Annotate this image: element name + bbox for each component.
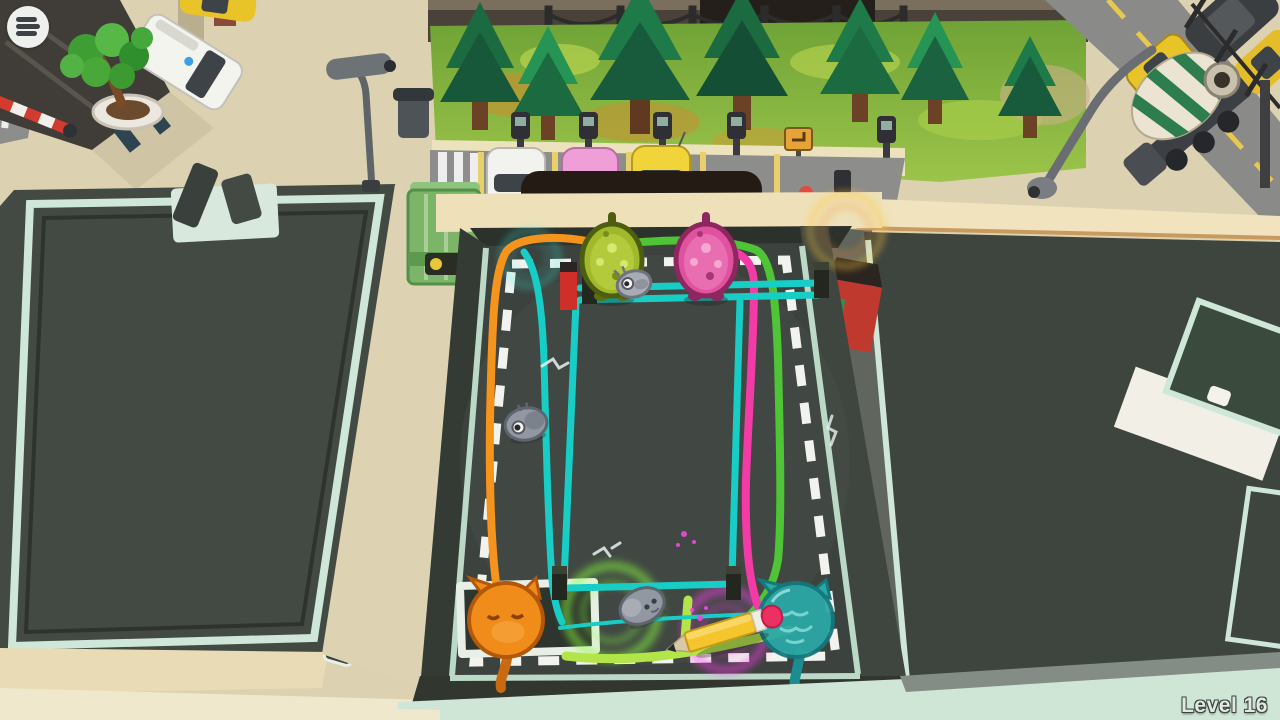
level-label: Level 16 [1181,694,1268,718]
menu-button[interactable] [7,6,49,48]
trash-bin [393,88,434,138]
right-rooftop [852,198,1280,698]
game-screen: Level 16 [0,0,1280,720]
red-box [560,262,577,310]
left-roof-edge [0,648,328,694]
city-scene [0,0,1280,720]
